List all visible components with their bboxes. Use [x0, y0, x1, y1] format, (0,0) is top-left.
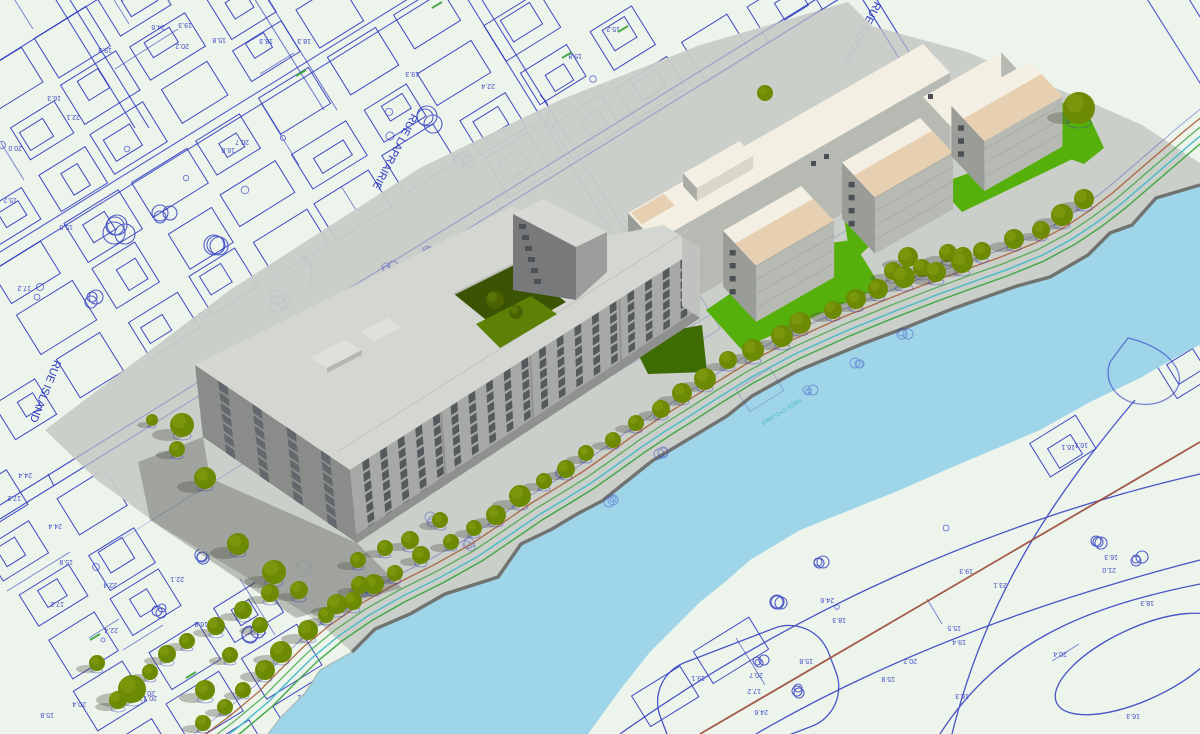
svg-text:24.6: 24.6 [151, 23, 165, 30]
svg-text:18.3: 18.3 [259, 37, 273, 44]
svg-text:24.4: 24.4 [18, 471, 32, 478]
svg-text:15.8: 15.8 [212, 36, 226, 43]
svg-text:15.8: 15.8 [59, 558, 73, 565]
svg-text:20.0: 20.0 [8, 144, 22, 151]
svg-text:19.3: 19.3 [98, 46, 112, 53]
svg-text:20.2: 20.2 [903, 657, 917, 664]
svg-text:15.5: 15.5 [59, 223, 73, 230]
svg-text:17.2: 17.2 [747, 687, 761, 694]
svg-text:17.2: 17.2 [50, 600, 64, 607]
svg-text:20.4: 20.4 [1053, 650, 1067, 657]
svg-text:22.1: 22.1 [66, 113, 80, 120]
svg-text:16.1: 16.1 [1061, 443, 1075, 450]
svg-text:23.1: 23.1 [993, 581, 1007, 588]
svg-text:19.3: 19.3 [405, 70, 419, 77]
svg-text:16.3: 16.3 [1126, 712, 1140, 719]
svg-text:15.2: 15.2 [3, 196, 17, 203]
svg-text:18.3: 18.3 [832, 616, 846, 623]
svg-text:20.2: 20.2 [175, 42, 189, 49]
svg-text:19.3: 19.3 [959, 567, 973, 574]
svg-text:22.4: 22.4 [104, 626, 118, 633]
svg-text:16.1: 16.1 [1074, 441, 1088, 448]
svg-text:22.4: 22.4 [103, 581, 117, 588]
svg-text:22.1: 22.1 [170, 575, 184, 582]
svg-text:15.5: 15.5 [947, 624, 961, 631]
svg-text:18.3: 18.3 [1140, 599, 1154, 606]
svg-text:18.3: 18.3 [297, 37, 311, 44]
svg-text:22.4: 22.4 [481, 82, 495, 89]
svg-text:17.2: 17.2 [17, 284, 31, 291]
svg-text:20.7: 20.7 [235, 138, 249, 145]
svg-text:24.6: 24.6 [754, 708, 768, 715]
svg-text:16.8: 16.8 [194, 620, 208, 627]
svg-text:24.4: 24.4 [48, 522, 62, 529]
svg-text:20.7: 20.7 [749, 671, 763, 678]
svg-text:15.8: 15.8 [881, 675, 895, 682]
svg-text:17.2: 17.2 [7, 494, 21, 501]
svg-text:24.6: 24.6 [820, 596, 834, 603]
svg-text:21.0: 21.0 [1102, 566, 1116, 573]
svg-text:15.8: 15.8 [799, 657, 813, 664]
svg-text:15.8: 15.8 [40, 711, 54, 718]
svg-text:19.3: 19.3 [178, 21, 192, 28]
svg-text:16.8: 16.8 [221, 146, 235, 153]
svg-text:16.3: 16.3 [47, 94, 61, 101]
svg-text:20.4: 20.4 [72, 700, 86, 707]
svg-text:19.1: 19.1 [691, 674, 705, 681]
svg-text:16.3: 16.3 [1104, 553, 1118, 560]
